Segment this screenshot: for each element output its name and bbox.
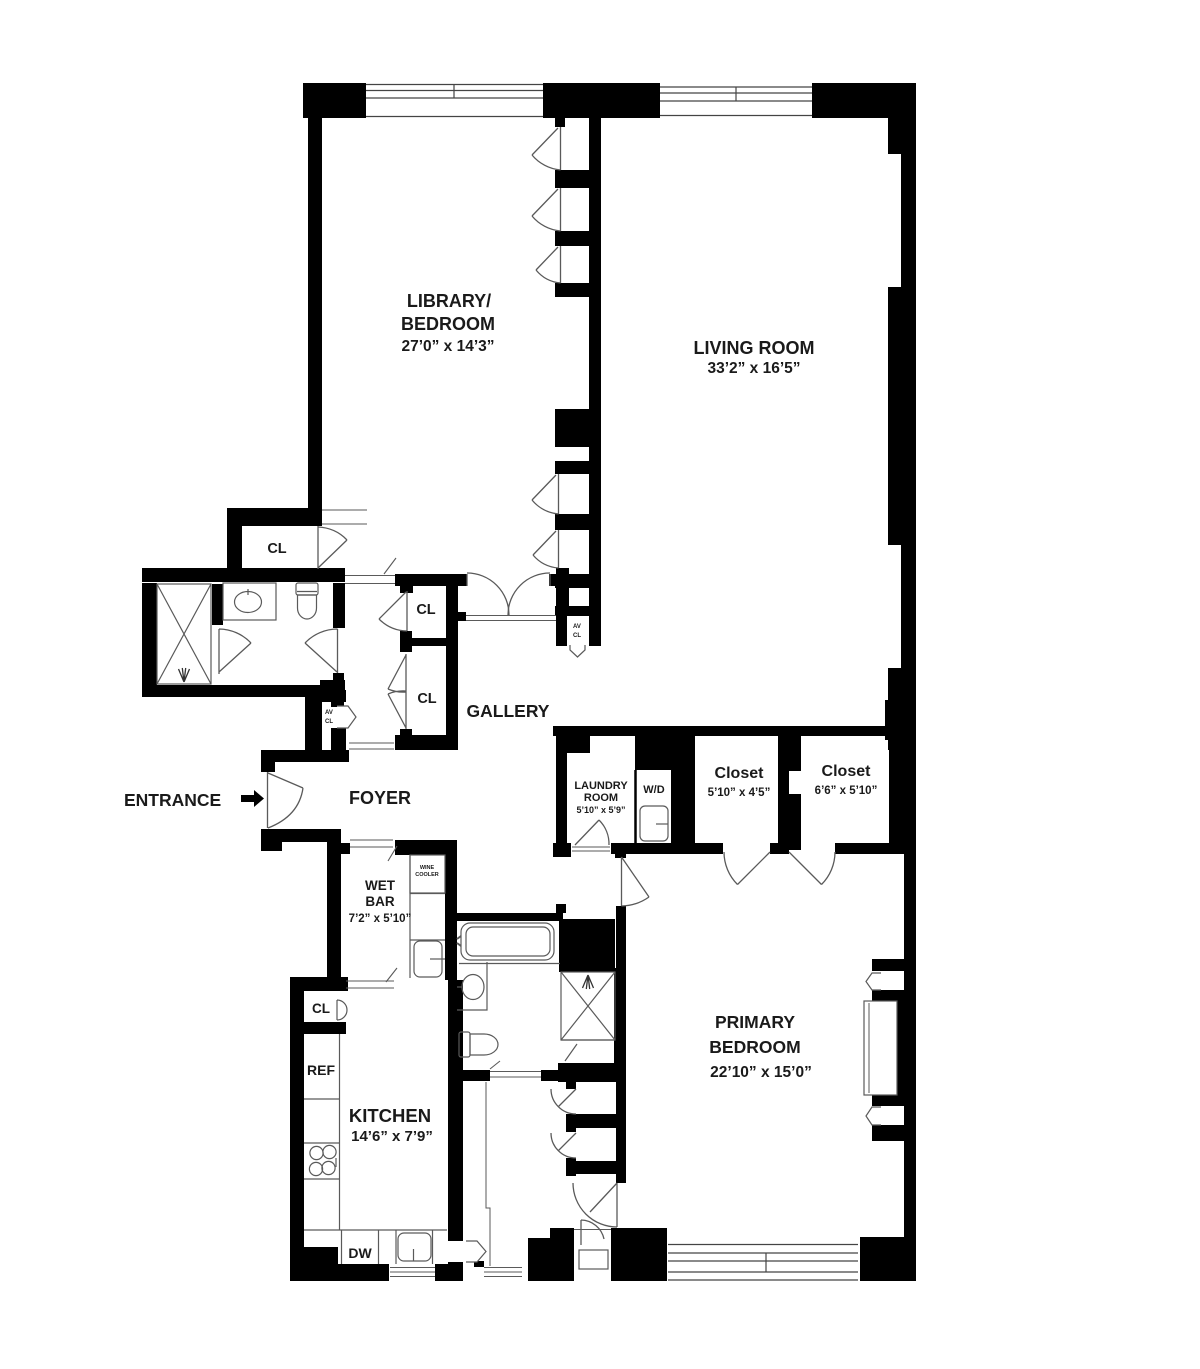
svg-text:7’2” x 5’10”: 7’2” x 5’10” bbox=[349, 913, 412, 925]
svg-text:CL: CL bbox=[416, 602, 435, 618]
svg-text:ENTRANCE: ENTRANCE bbox=[124, 790, 221, 810]
svg-text:5’10” x 5’9”: 5’10” x 5’9” bbox=[576, 805, 625, 815]
svg-text:DW: DW bbox=[348, 1245, 372, 1261]
svg-text:33’2” x 16’5”: 33’2” x 16’5” bbox=[707, 360, 800, 377]
svg-text:CL: CL bbox=[573, 633, 581, 639]
svg-text:BEDROOM: BEDROOM bbox=[709, 1037, 800, 1057]
svg-text:Closet: Closet bbox=[715, 765, 765, 782]
svg-text:BEDROOM: BEDROOM bbox=[401, 314, 495, 334]
svg-text:REF: REF bbox=[307, 1062, 335, 1078]
svg-text:CL: CL bbox=[325, 719, 333, 725]
svg-text:AV: AV bbox=[573, 624, 581, 630]
svg-text:Closet: Closet bbox=[822, 763, 872, 780]
svg-text:PRIMARY: PRIMARY bbox=[715, 1012, 795, 1032]
svg-text:GALLERY: GALLERY bbox=[467, 701, 550, 721]
svg-text:BAR: BAR bbox=[365, 894, 394, 909]
svg-text:LIVING ROOM: LIVING ROOM bbox=[694, 338, 815, 358]
svg-text:CL: CL bbox=[267, 541, 286, 557]
svg-text:22’10” x 15’0”: 22’10” x 15’0” bbox=[710, 1064, 812, 1081]
svg-text:27’0” x 14’3”: 27’0” x 14’3” bbox=[401, 338, 494, 355]
svg-text:LIBRARY/: LIBRARY/ bbox=[407, 291, 491, 311]
svg-text:5’10” x 4’5”: 5’10” x 4’5” bbox=[708, 787, 771, 799]
svg-text:6’6” x 5’10”: 6’6” x 5’10” bbox=[815, 785, 878, 797]
svg-text:LAUNDRY: LAUNDRY bbox=[574, 780, 628, 792]
svg-text:AV: AV bbox=[325, 710, 333, 716]
svg-text:FOYER: FOYER bbox=[349, 788, 411, 808]
svg-text:COOLER: COOLER bbox=[415, 872, 439, 878]
svg-text:ROOM: ROOM bbox=[584, 792, 618, 804]
svg-text:WINE: WINE bbox=[420, 865, 435, 871]
svg-text:CL: CL bbox=[417, 691, 436, 707]
svg-text:WET: WET bbox=[365, 878, 396, 893]
svg-text:KITCHEN: KITCHEN bbox=[349, 1105, 431, 1126]
svg-text:14’6” x 7’9”: 14’6” x 7’9” bbox=[351, 1128, 433, 1145]
svg-text:CL: CL bbox=[312, 1001, 330, 1016]
svg-text:W/D: W/D bbox=[643, 784, 664, 796]
